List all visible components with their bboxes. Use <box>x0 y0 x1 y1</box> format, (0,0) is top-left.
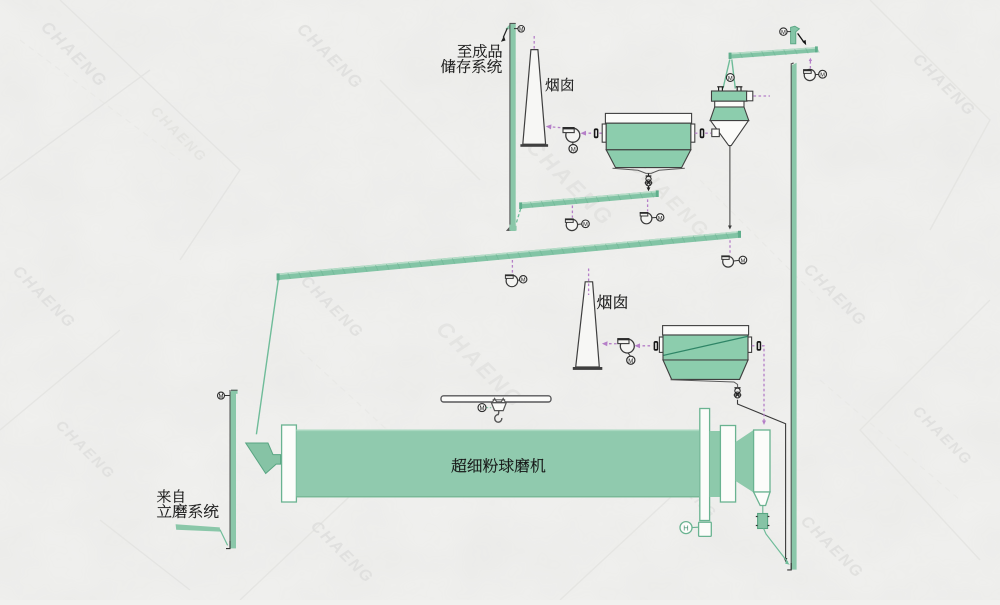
svg-text:M: M <box>820 73 825 79</box>
svg-text:M: M <box>628 359 633 365</box>
svg-text:M: M <box>658 216 663 222</box>
svg-text:M: M <box>521 278 526 284</box>
svg-text:M: M <box>583 222 588 228</box>
svg-text:M: M <box>480 406 485 412</box>
svg-text:M: M <box>781 30 786 36</box>
svg-text:M: M <box>571 147 576 153</box>
svg-text:M: M <box>519 27 523 33</box>
svg-text:M: M <box>728 76 733 82</box>
svg-text:M: M <box>741 258 746 264</box>
svg-text:H: H <box>683 523 688 532</box>
svg-text:M: M <box>219 394 224 400</box>
